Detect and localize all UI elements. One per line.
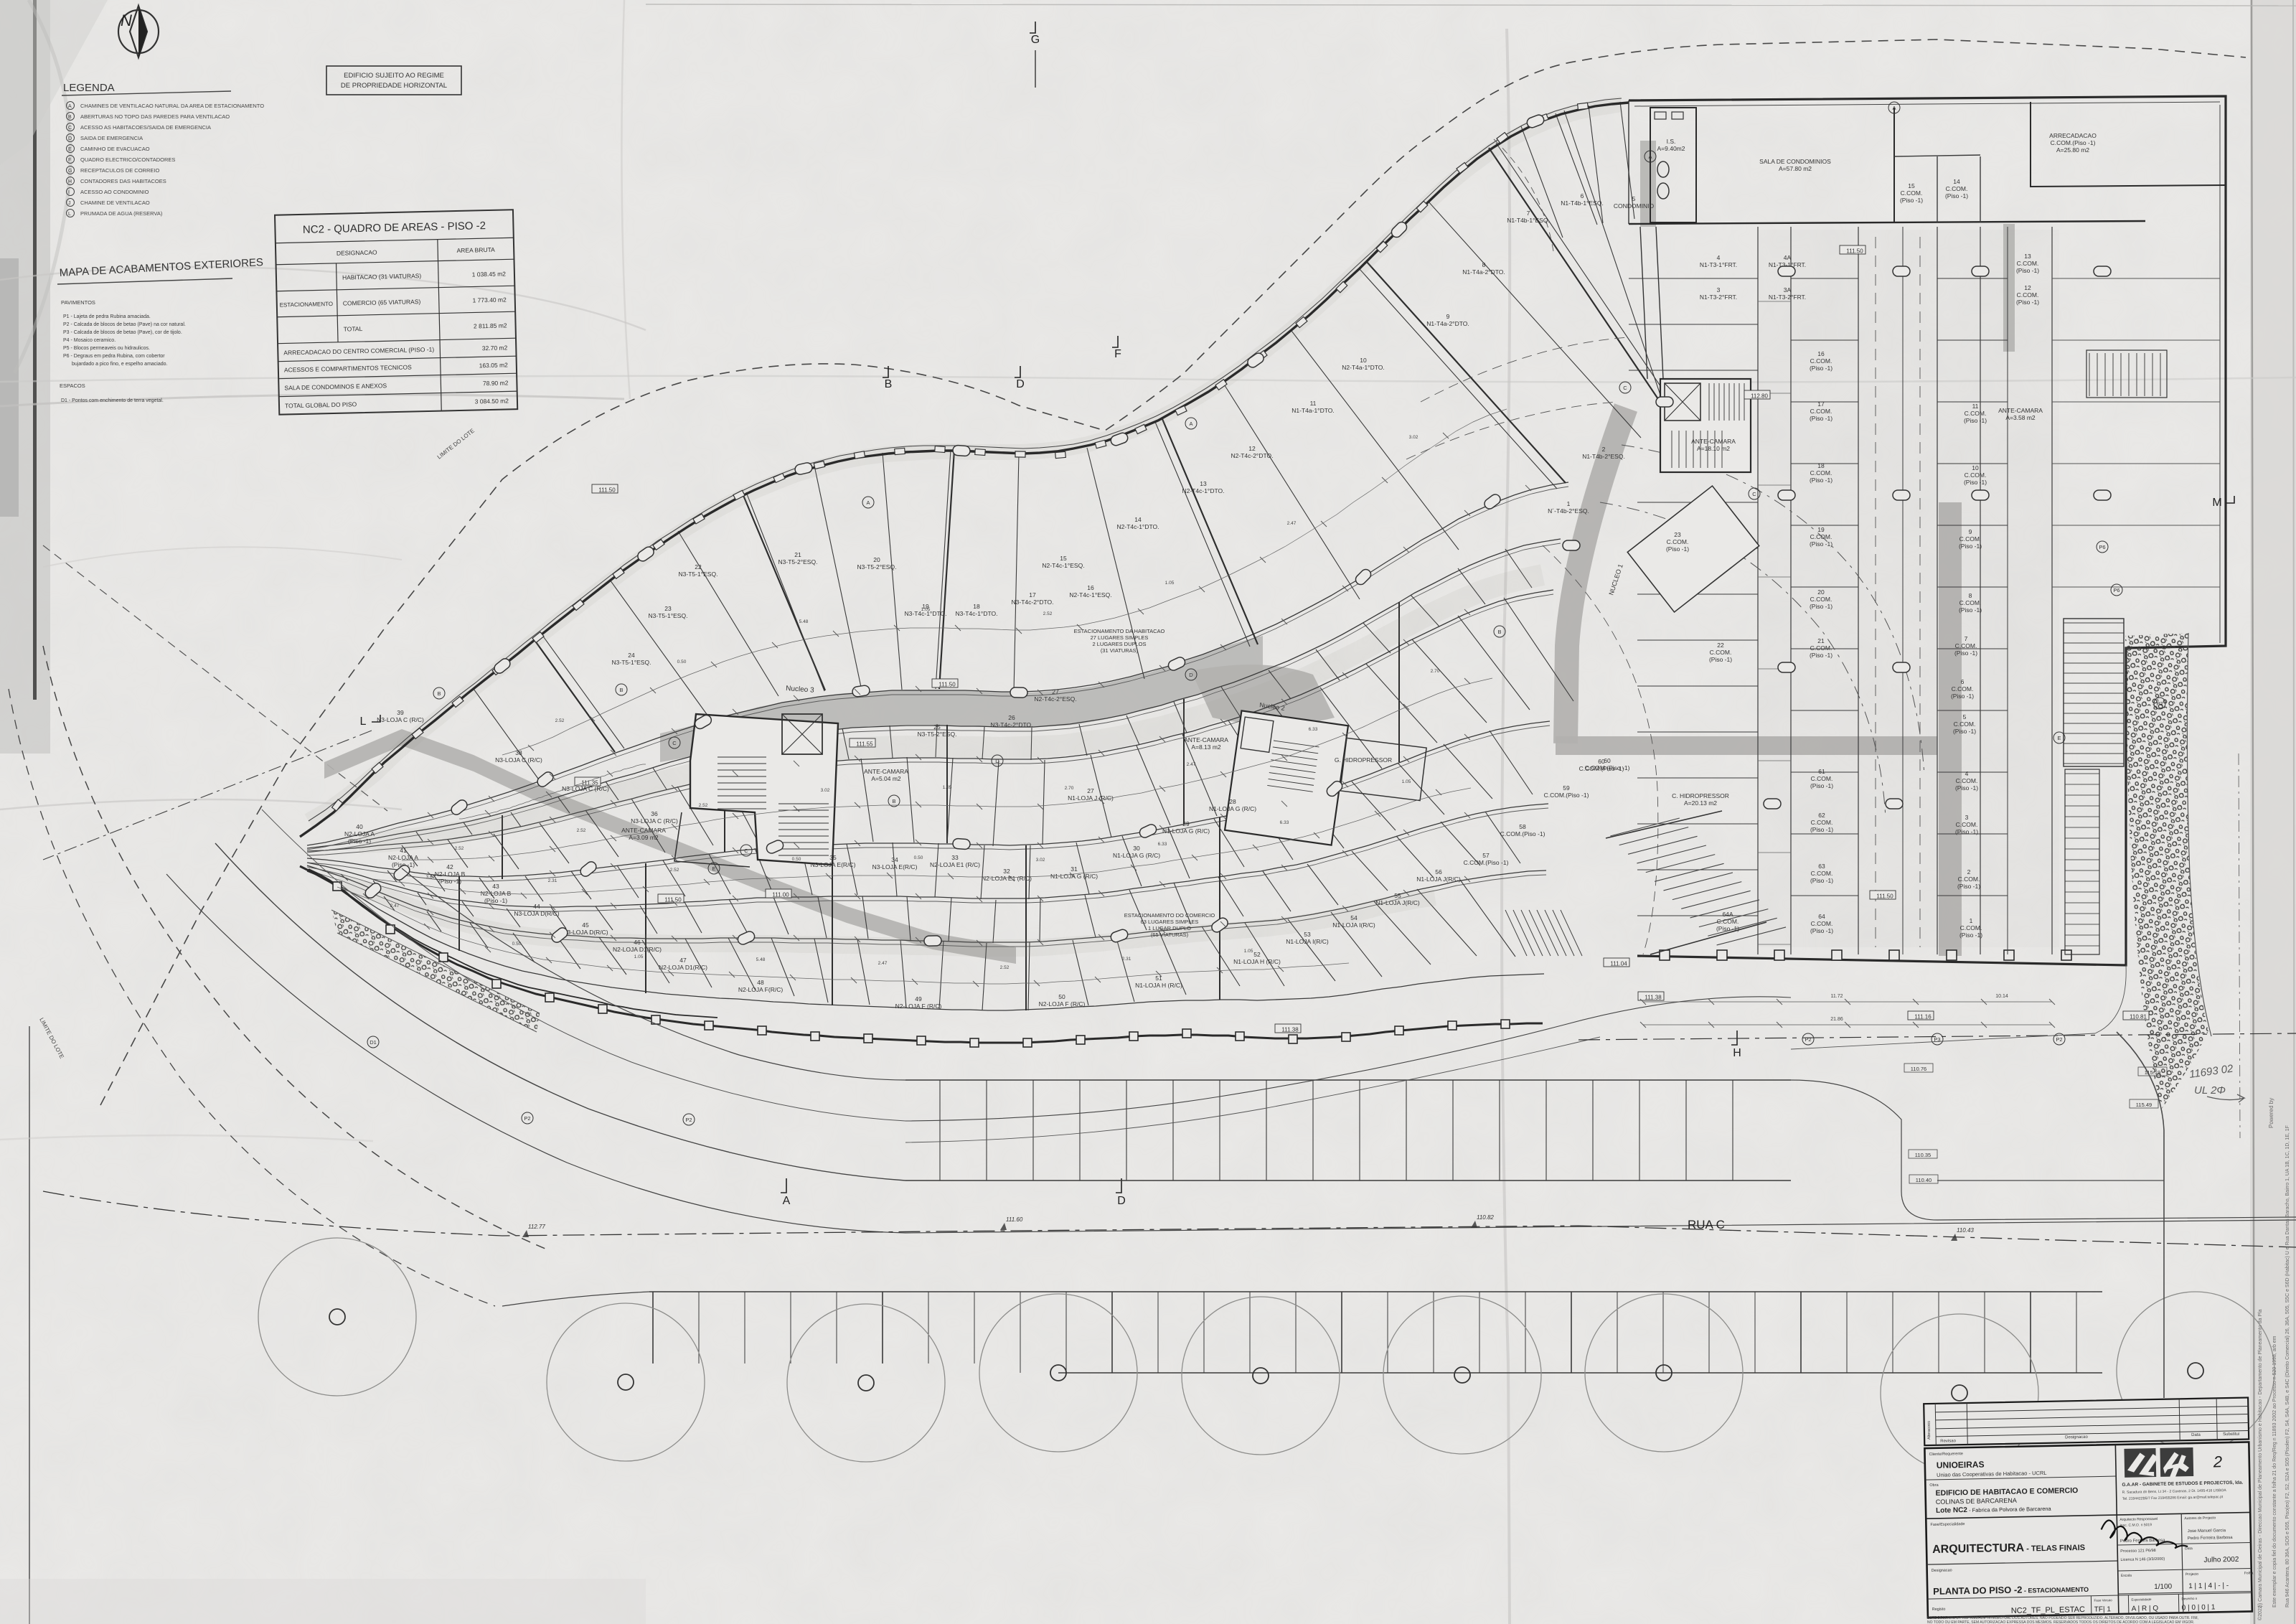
- svg-text:ESTACIONAMENTO: ESTACIONAMENTO: [280, 301, 334, 309]
- svg-text:Designacao: Designacao: [1932, 1568, 1952, 1573]
- svg-text:D: D: [995, 758, 999, 764]
- svg-text:Obra: Obra: [1929, 1483, 1939, 1488]
- svg-text:Escala: Escala: [2121, 1574, 2132, 1578]
- svg-text:110.40: 110.40: [1916, 1177, 1932, 1183]
- svg-text:P6: P6: [2113, 587, 2119, 593]
- svg-text:D: D: [1189, 672, 1193, 678]
- svg-text:111.38: 111.38: [1645, 995, 1662, 1001]
- svg-text:I: I: [68, 190, 70, 195]
- svg-text:A: A: [1189, 421, 1192, 427]
- svg-text:bujardado a pico fino, e espel: bujardado a pico fino, e espelho amaciad…: [72, 362, 168, 367]
- svg-text:2.31: 2.31: [1122, 957, 1131, 962]
- svg-text:A: A: [783, 1195, 791, 1207]
- svg-text:11.72: 11.72: [1831, 994, 1843, 999]
- svg-text:D: D: [1016, 378, 1025, 390]
- svg-text:1 773.40 m2: 1 773.40 m2: [472, 296, 507, 304]
- svg-text:RUA C: RUA C: [1688, 1218, 1725, 1231]
- svg-text:0.50: 0.50: [677, 660, 687, 665]
- svg-text:C: C: [744, 848, 748, 854]
- svg-text:CHAMINE DE VENTILACAO: CHAMINE DE VENTILACAO: [80, 200, 150, 206]
- svg-text:ACESSO AS HABITACOES/SAIDA DE: ACESSO AS HABITACOES/SAIDA DE EMERGENCIA: [80, 124, 211, 131]
- svg-text:10.14: 10.14: [1995, 994, 2008, 999]
- svg-text:1/100: 1/100: [2154, 1583, 2173, 1591]
- svg-text:1.05: 1.05: [943, 785, 952, 790]
- svg-text:B: B: [437, 690, 441, 697]
- svg-text:111.50: 111.50: [664, 897, 682, 903]
- svg-text:Data: Data: [2191, 1433, 2201, 1437]
- svg-text:A | R | Q: A | R | Q: [2132, 1605, 2159, 1613]
- svg-text:110.76: 110.76: [1911, 1066, 1926, 1072]
- svg-text:2.52: 2.52: [699, 803, 708, 808]
- svg-text:P3 - Calcada de blocos de beta: P3 - Calcada de blocos de betao (Pave), …: [63, 330, 182, 335]
- svg-text:110.43: 110.43: [1957, 1227, 1974, 1234]
- svg-text:C: C: [672, 740, 677, 746]
- svg-text:Especialidade: Especialidade: [2131, 1597, 2152, 1602]
- svg-text:D: D: [1117, 1195, 1126, 1207]
- svg-text:21.86: 21.86: [1830, 1017, 1843, 1022]
- svg-text:Jose Manuel Garcia: Jose Manuel Garcia: [2188, 1529, 2226, 1534]
- svg-text:B: B: [885, 378, 893, 390]
- svg-text:Fase/Especialidade: Fase/Especialidade: [1930, 1522, 1965, 1527]
- svg-text:P4 - Mosaico ceramico.: P4 - Mosaico ceramico.: [63, 338, 116, 343]
- svg-text:D1 - Pontos com enchimento de: D1 - Pontos com enchimento de terra vege…: [61, 398, 164, 403]
- svg-text:NC2_TF_PL_ESTAC: NC2_TF_PL_ESTAC: [2011, 1605, 2085, 1615]
- svg-text:2.70: 2.70: [1431, 669, 1440, 674]
- svg-text:110.82: 110.82: [1477, 1214, 1494, 1221]
- svg-text:2.52: 2.52: [555, 718, 565, 723]
- svg-text:©2022: ©2022: [2257, 1605, 2263, 1620]
- svg-text:112.80: 112.80: [1751, 393, 1768, 400]
- svg-text:Julho 2002: Julho 2002: [2203, 1556, 2239, 1564]
- svg-text:PRUMADA DE AGUA (RESERVA): PRUMADA DE AGUA (RESERVA): [80, 210, 163, 217]
- svg-text:111.04: 111.04: [1610, 961, 1627, 967]
- svg-text:P2: P2: [1805, 1036, 1811, 1043]
- svg-text:2.52: 2.52: [455, 846, 464, 851]
- svg-text:Registo: Registo: [1932, 1607, 1946, 1612]
- svg-text:L: L: [360, 715, 367, 728]
- svg-text:DE PROPRIEDADE HORIZONTAL: DE PROPRIEDADE HORIZONTAL: [341, 82, 447, 90]
- svg-text:DESIGNACAO: DESIGNACAO: [337, 249, 377, 257]
- svg-text:E: E: [2057, 735, 2061, 741]
- svg-text:P6: P6: [2099, 544, 2105, 550]
- svg-text:P2: P2: [2056, 1036, 2062, 1043]
- svg-text:Fase Versao: Fase Versao: [2094, 1598, 2112, 1602]
- svg-text:N: N: [121, 11, 132, 29]
- svg-text:ANTE-CAMARAA=18.10 m2: ANTE-CAMARAA=18.10 m2: [1691, 438, 1736, 452]
- svg-text:32.70 m2: 32.70 m2: [482, 344, 508, 352]
- svg-text:E: E: [712, 865, 715, 872]
- svg-text:QUADRO ELECTRICO/CONTADORES: QUADRO ELECTRICO/CONTADORES: [80, 156, 175, 163]
- svg-text:Folha: Folha: [2244, 1571, 2254, 1575]
- svg-text:2 811.85 m2: 2 811.85 m2: [474, 321, 507, 329]
- svg-text:163.05 m2: 163.05 m2: [479, 361, 509, 369]
- svg-text:D: D: [68, 136, 72, 141]
- svg-text:G: G: [1031, 34, 1040, 46]
- svg-text:2.70: 2.70: [1065, 786, 1074, 791]
- svg-text:P2: P2: [685, 1117, 692, 1123]
- svg-text:AREA BRUTA: AREA BRUTA: [456, 246, 495, 254]
- svg-text:5.48: 5.48: [799, 619, 809, 624]
- svg-text:UNIOEIRAS: UNIOEIRAS: [1937, 1460, 1985, 1470]
- svg-text:SAIDA DE EMERGENCIA: SAIDA DE EMERGENCIA: [80, 135, 143, 141]
- svg-text:111.50: 111.50: [1846, 248, 1863, 255]
- svg-text:C: C: [68, 126, 72, 131]
- svg-text:3.02: 3.02: [821, 788, 830, 793]
- svg-text:EDIFICIO SUJEITO AO REGIME: EDIFICIO SUJEITO AO REGIME: [344, 72, 444, 80]
- svg-text:ESPACOS: ESPACOS: [60, 382, 85, 389]
- svg-text:Substitui: Substitui: [2223, 1432, 2239, 1437]
- svg-text:UL 2Φ: UL 2Φ: [2194, 1084, 2226, 1097]
- svg-text:1.05: 1.05: [634, 954, 644, 959]
- svg-text:111.50: 111.50: [938, 682, 956, 688]
- svg-text:G: G: [68, 169, 72, 174]
- svg-text:111.16: 111.16: [1914, 1014, 1932, 1020]
- svg-text:111.38: 111.38: [1281, 1027, 1299, 1033]
- svg-text:P1 - Lajeta de pedra Rubina am: P1 - Lajeta de pedra Rubina amaciada.: [63, 314, 151, 319]
- svg-text:(i) Camara Municipal de Oei: (i) Camara Municipal de Oeiras - Direcca…: [2258, 1309, 2263, 1607]
- svg-text:2.52: 2.52: [1000, 965, 1010, 970]
- svg-text:J: J: [68, 201, 71, 206]
- svg-text:Projecto: Projecto: [2186, 1572, 2199, 1577]
- svg-text:111.60: 111.60: [1006, 1216, 1023, 1223]
- svg-text:E: E: [68, 147, 72, 152]
- svg-text:111.50: 111.50: [598, 487, 616, 494]
- svg-text:1 | 1 | 4 | - | -: 1 | 1 | 4 | - | -: [2188, 1582, 2229, 1590]
- svg-text:D1: D1: [370, 1039, 377, 1046]
- svg-text:1 038.45 m2: 1 038.45 m2: [472, 270, 507, 278]
- svg-text:H: H: [68, 179, 72, 184]
- svg-text:Desenho n: Desenho n: [2181, 1597, 2197, 1600]
- svg-text:B: B: [619, 687, 623, 693]
- svg-text:3.67: 3.67: [426, 875, 436, 880]
- svg-text:P5 - Blocos permeaveis ou hidr: P5 - Blocos permeaveis ou hidraulicos.: [63, 346, 150, 351]
- svg-text:M: M: [2212, 497, 2221, 509]
- svg-text:6.33: 6.33: [1309, 727, 1318, 732]
- svg-text:NO TODO OU EM PARTE, SEM AUTOR: NO TODO OU EM PARTE, SEM AUTORIZACAO EXP…: [1927, 1620, 2194, 1624]
- svg-text:P2: P2: [524, 1115, 530, 1122]
- svg-text:6.33: 6.33: [1158, 842, 1167, 847]
- svg-text:110.35: 110.35: [1915, 1152, 1931, 1158]
- svg-text:1.05: 1.05: [1244, 949, 1253, 954]
- svg-text:CONTADORES DAS HABITACOES: CONTADORES DAS HABITACOES: [80, 178, 166, 184]
- svg-text:110.81: 110.81: [2130, 1014, 2147, 1020]
- svg-text:2.47: 2.47: [390, 903, 400, 909]
- svg-text:Insc. C.M.O. n 5019: Insc. C.M.O. n 5019: [2119, 1523, 2152, 1528]
- svg-text:Pedro Ferreira Barbosa: Pedro Ferreira Barbosa: [2188, 1536, 2233, 1541]
- svg-text:ABERTURAS NO TOPO DAS PAREDES: ABERTURAS NO TOPO DAS PAREDES PARA VENTI…: [80, 113, 230, 120]
- svg-text:2.52: 2.52: [577, 828, 586, 833]
- svg-text:Alteracoes: Alteracoes: [1927, 1421, 1932, 1440]
- svg-text:P2 - Calcada de blocos de beta: P2 - Calcada de blocos de betao (Pave) n…: [63, 322, 186, 327]
- svg-text:Arquitecto Responsavel: Arquitecto Responsavel: [2119, 1517, 2158, 1522]
- svg-text:C: C: [1752, 491, 1756, 497]
- svg-text:Cliente/Requerente: Cliente/Requerente: [1929, 1452, 1964, 1457]
- svg-text:3 084.50 m2: 3 084.50 m2: [475, 397, 509, 405]
- svg-text:TF| 1: TF| 1: [2094, 1605, 2112, 1613]
- svg-text:2.47: 2.47: [1287, 521, 1297, 526]
- svg-text:2: 2: [2213, 1452, 2223, 1470]
- svg-text:P2: P2: [2156, 700, 2163, 707]
- svg-text:RECEPTACULOS DE CORREIO: RECEPTACULOS DE CORREIO: [80, 167, 159, 174]
- svg-text:Processo 121 P6/98: Processo 121 P6/98: [2120, 1549, 2156, 1554]
- svg-text:1.05: 1.05: [1402, 779, 1411, 784]
- svg-text:B: B: [68, 115, 72, 120]
- svg-text:P6 - Degraus em pedra Rubina,: P6 - Degraus em pedra Rubina, com cobert…: [63, 354, 165, 359]
- svg-text:A: A: [866, 499, 870, 506]
- svg-text:2.52: 2.52: [670, 868, 679, 873]
- svg-text:3.02: 3.02: [1036, 858, 1045, 863]
- svg-text:0 | 0 | 0 | 1: 0 | 0 | 0 | 1: [2182, 1603, 2216, 1612]
- svg-text:C: C: [1623, 385, 1627, 391]
- svg-text:Licenca N 146 (3/3/2000): Licenca N 146 (3/3/2000): [2120, 1557, 2165, 1562]
- svg-text:A: A: [68, 104, 72, 109]
- svg-text:L: L: [68, 212, 71, 217]
- svg-text:111.00: 111.00: [772, 892, 789, 898]
- svg-text:H: H: [1733, 1047, 1741, 1059]
- svg-text:Designacao: Designacao: [2065, 1435, 2088, 1440]
- svg-text:2.47: 2.47: [878, 961, 888, 966]
- svg-text:LEGENDA: LEGENDA: [63, 82, 115, 94]
- svg-text:111.50: 111.50: [1876, 893, 1893, 900]
- svg-text:111.55: 111.55: [856, 741, 873, 748]
- svg-text:Autores do Projecto: Autores do Projecto: [2184, 1516, 2216, 1521]
- svg-text:A: A: [1648, 154, 1652, 160]
- svg-text:B: B: [1497, 629, 1501, 635]
- svg-text:0.50: 0.50: [914, 855, 923, 860]
- svg-text:0.50: 0.50: [792, 857, 801, 862]
- svg-text:3.02: 3.02: [1409, 435, 1418, 440]
- svg-text:2.31: 2.31: [548, 878, 557, 883]
- svg-text:Este exemplar e copia fiel do: Este exemplar e copia fiel do documento …: [2272, 1336, 2277, 1607]
- svg-text:6.33: 6.33: [1280, 820, 1289, 825]
- svg-text:Rua 946 Acantera, 80 36A, SO5: Rua 946 Acantera, 80 36A, SO5 e 505, Pis…: [2285, 1125, 2290, 1607]
- svg-text:F: F: [68, 158, 71, 163]
- svg-text:1.05: 1.05: [921, 607, 931, 612]
- svg-text:Data: Data: [2185, 1546, 2193, 1551]
- svg-text:PAVIMENTOS: PAVIMENTOS: [61, 299, 95, 306]
- svg-text:78.90 m2: 78.90 m2: [483, 379, 509, 387]
- svg-text:0.50: 0.50: [512, 942, 522, 947]
- svg-text:Powered by: Powered by: [2268, 1098, 2274, 1128]
- svg-text:CHAMINES DE VENTILACAO NATURAL: CHAMINES DE VENTILACAO NATURAL DA AREA D…: [80, 103, 264, 109]
- svg-text:115.49: 115.49: [2136, 1102, 2152, 1108]
- svg-text:A: A: [1892, 105, 1896, 111]
- svg-text:2.52: 2.52: [1043, 611, 1053, 616]
- svg-text:5.48: 5.48: [756, 957, 766, 962]
- svg-text:CAMINHO DE EVACUACAO: CAMINHO DE EVACUACAO: [80, 146, 150, 152]
- svg-text:112.77: 112.77: [528, 1224, 545, 1230]
- svg-text:Revisao: Revisao: [1940, 1439, 1956, 1443]
- svg-text:ACESSO AO CONDOMINIO: ACESSO AO CONDOMINIO: [80, 189, 149, 195]
- svg-text:G. HIDROPRESSOR: G. HIDROPRESSOR: [1335, 756, 1392, 764]
- svg-text:B: B: [892, 798, 895, 804]
- svg-text:F: F: [1114, 348, 1121, 360]
- svg-text:TOTAL: TOTAL: [344, 325, 363, 333]
- svg-text:2.47: 2.47: [1187, 762, 1196, 767]
- svg-text:1.05: 1.05: [1165, 581, 1175, 586]
